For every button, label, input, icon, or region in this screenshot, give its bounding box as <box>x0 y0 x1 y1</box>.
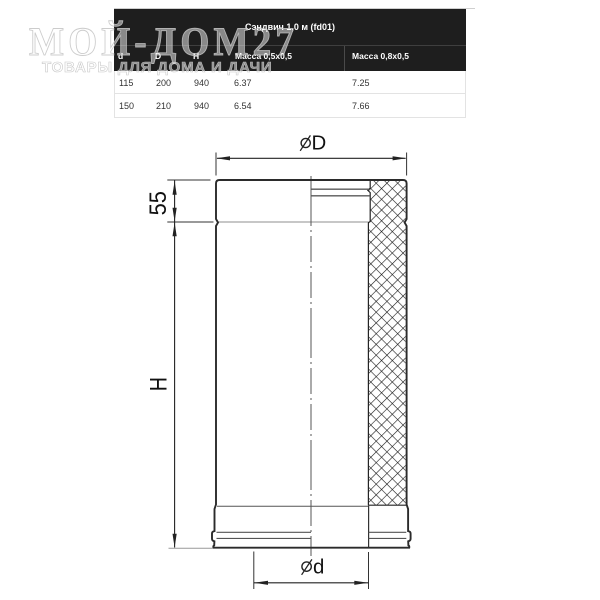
svg-text:D: D <box>312 133 327 155</box>
svg-text:55: 55 <box>144 191 171 215</box>
svg-text:H: H <box>144 377 171 391</box>
svg-text:d: d <box>313 556 324 578</box>
